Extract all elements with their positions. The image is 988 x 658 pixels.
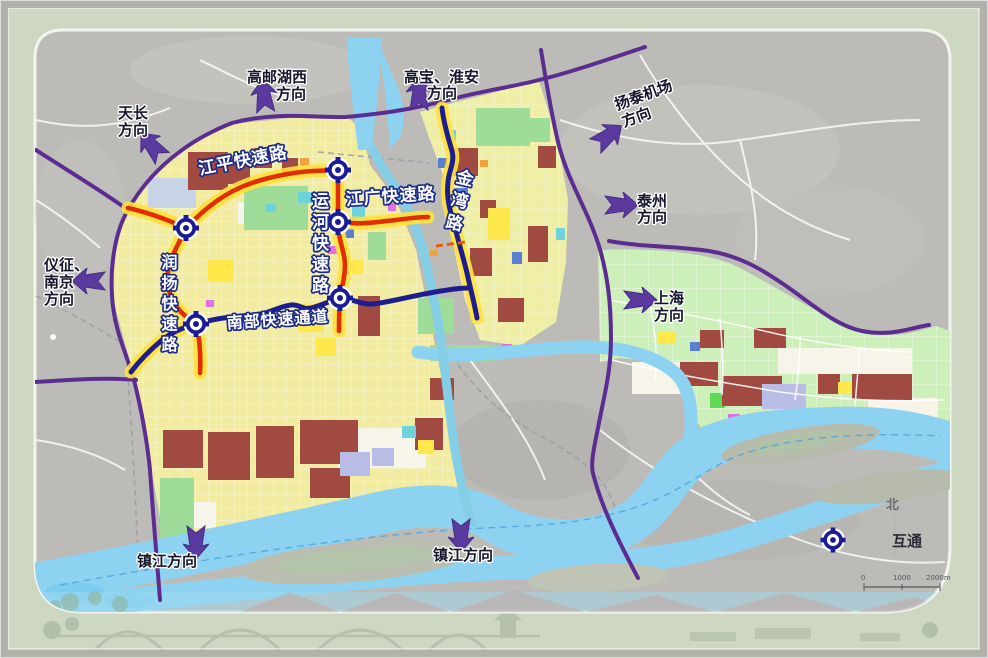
svg-text:方向: 方向 [44, 290, 74, 308]
road-label-runyang: 润扬快速路 [161, 253, 178, 354]
svg-text:方向: 方向 [118, 121, 148, 139]
north-indicator: 北 [886, 498, 899, 513]
svg-text:方向: 方向 [276, 85, 306, 103]
direction-label-zhenjiang-east: 镇江方向 [433, 546, 493, 564]
svg-text:方向: 方向 [654, 306, 684, 324]
svg-text:1000: 1000 [893, 574, 911, 582]
direction-label-yizheng-nanjing: 仪征、 [43, 256, 89, 274]
direction-label-shanghai: 上海 [654, 289, 684, 307]
town-dot [50, 334, 56, 340]
direction-label-zhenjiang-west: 镇江方向 [137, 552, 197, 570]
map-figure: 江平快速路 江广快速路 运河快速路 润扬快速路 金湾路 南部快速通道 天长 方向… [0, 0, 988, 658]
bottom-blend-band [35, 590, 950, 612]
direction-label-gaoyou-huxi: 高邮湖西 [247, 68, 307, 86]
svg-text:2000m: 2000m [926, 574, 951, 582]
svg-text:方向: 方向 [427, 84, 457, 102]
direction-label-tianchang: 天长 [118, 104, 149, 122]
map-svg: 江平快速路 江广快速路 运河快速路 润扬快速路 金湾路 南部快速通道 天长 方向… [0, 0, 988, 658]
svg-text:0: 0 [861, 574, 865, 582]
svg-text:南京: 南京 [44, 273, 74, 291]
road-label-yunhe: 运河快速路 [312, 192, 330, 296]
legend-interchange-label: 互通 [892, 532, 922, 550]
svg-text:方向: 方向 [637, 208, 667, 226]
